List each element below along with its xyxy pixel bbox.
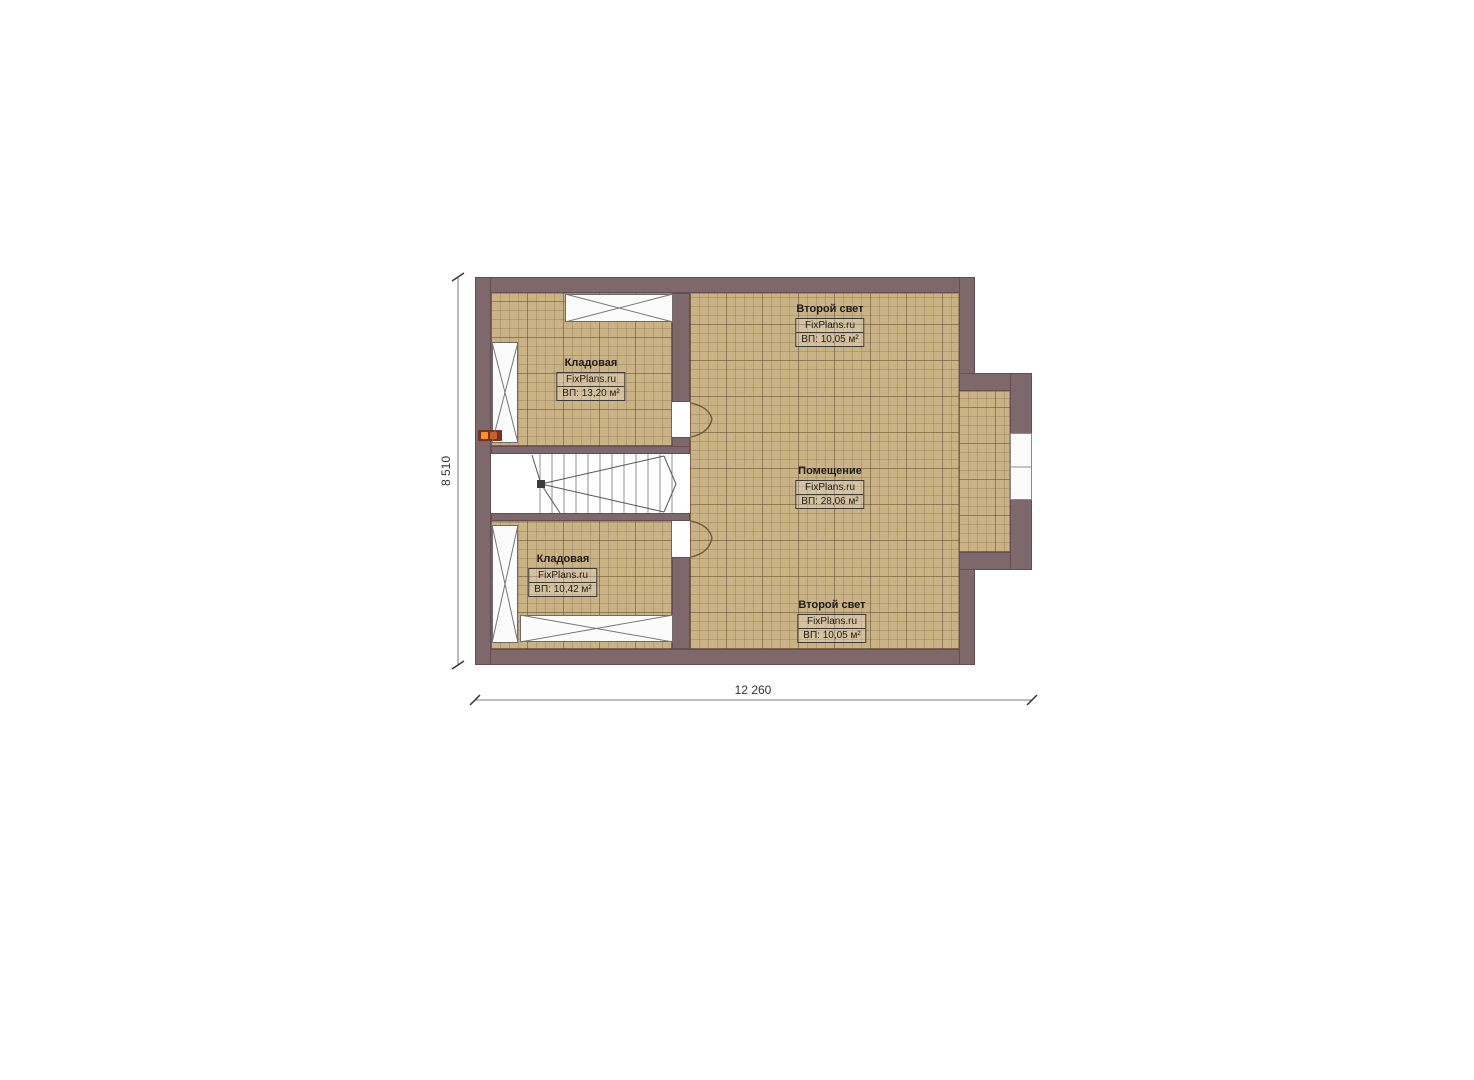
door-opening-bottom-storage	[672, 521, 690, 557]
room-label-storage-bottom: Кладовая FixPlans.ru ВП: 10,42 м²	[528, 553, 597, 597]
room-area: ВП: 10,05 м²	[798, 629, 865, 642]
room-brand: FixPlans.ru	[529, 569, 596, 583]
room-brand: FixPlans.ru	[798, 615, 865, 629]
room-label-second-light-top: Второй свет FixPlans.ru ВП: 10,05 м²	[795, 303, 864, 347]
interior-wall-stair-top	[491, 446, 690, 454]
fixture-dot-icon	[481, 432, 488, 439]
stairwell-area	[491, 454, 690, 513]
wall-fixture-marker	[478, 430, 502, 441]
room-name: Второй свет	[795, 303, 864, 316]
room-area: ВП: 28,06 м²	[796, 495, 863, 508]
dimension-width: 12 260	[470, 683, 1037, 705]
room-brand: FixPlans.ru	[796, 319, 863, 333]
outer-wall-top	[475, 277, 975, 293]
dimension-height: 8 510	[439, 273, 464, 669]
interior-wall-stair-bottom	[491, 513, 690, 521]
window-bay	[1010, 433, 1032, 500]
outer-wall-left	[475, 277, 491, 665]
wardrobe-left-lower	[492, 525, 518, 643]
room-label-storage-top: Кладовая FixPlans.ru ВП: 13,20 м²	[556, 357, 625, 401]
room-area: ВП: 10,05 м²	[796, 333, 863, 346]
room-info-box: FixPlans.ru ВП: 10,05 м²	[797, 614, 866, 643]
room-info-box: FixPlans.ru ВП: 28,06 м²	[795, 480, 864, 509]
room-label-main-room: Помещение FixPlans.ru ВП: 28,06 м²	[795, 465, 864, 509]
wardrobe-top	[565, 294, 673, 322]
room-info-box: FixPlans.ru ВП: 10,05 м²	[795, 318, 864, 347]
room-name: Кладовая	[528, 553, 597, 566]
outer-wall-bottom	[475, 649, 975, 665]
room-brand: FixPlans.ru	[557, 373, 624, 387]
room-label-second-light-bottom: Второй свет FixPlans.ru ВП: 10,05 м²	[797, 599, 866, 643]
room-area: ВП: 13,20 м²	[557, 387, 624, 400]
room-name: Второй свет	[797, 599, 866, 612]
wardrobe-bottom	[520, 615, 673, 642]
room-info-box: FixPlans.ru ВП: 13,20 м²	[556, 372, 625, 401]
dimension-width-label: 12 260	[735, 683, 772, 697]
wardrobe-left-upper	[492, 342, 518, 443]
floor-bay-extension	[959, 391, 1010, 552]
dimension-height-label: 8 510	[439, 456, 453, 486]
floor-plan-canvas: Кладовая FixPlans.ru ВП: 13,20 м² Второй…	[0, 0, 1474, 1080]
room-area: ВП: 10,42 м²	[529, 583, 596, 596]
door-opening-top-storage	[672, 402, 690, 437]
room-name: Помещение	[795, 465, 864, 478]
room-brand: FixPlans.ru	[796, 481, 863, 495]
interior-wall-vertical-upper	[672, 293, 690, 402]
room-name: Кладовая	[556, 357, 625, 370]
fixture-dot-icon	[490, 432, 497, 439]
interior-wall-vertical-lower	[672, 557, 690, 649]
room-info-box: FixPlans.ru ВП: 10,42 м²	[528, 568, 597, 597]
